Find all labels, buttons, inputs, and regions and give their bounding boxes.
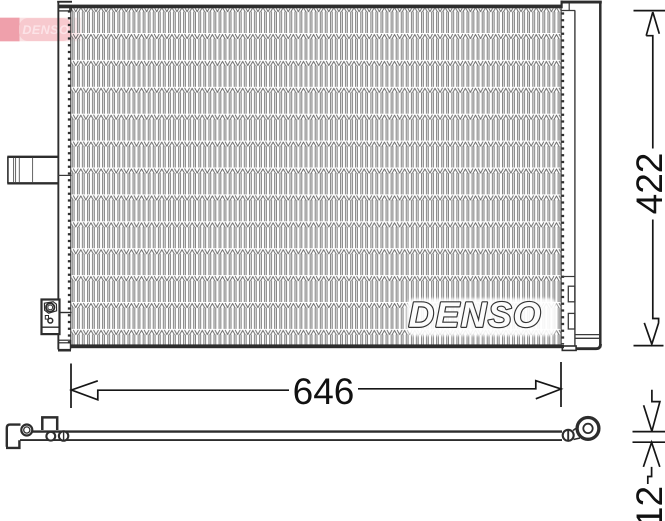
svg-text:DENSO: DENSO bbox=[22, 23, 69, 37]
svg-text:12: 12 bbox=[629, 486, 665, 521]
svg-text:422: 422 bbox=[629, 153, 665, 215]
svg-text:646: 646 bbox=[293, 371, 355, 412]
